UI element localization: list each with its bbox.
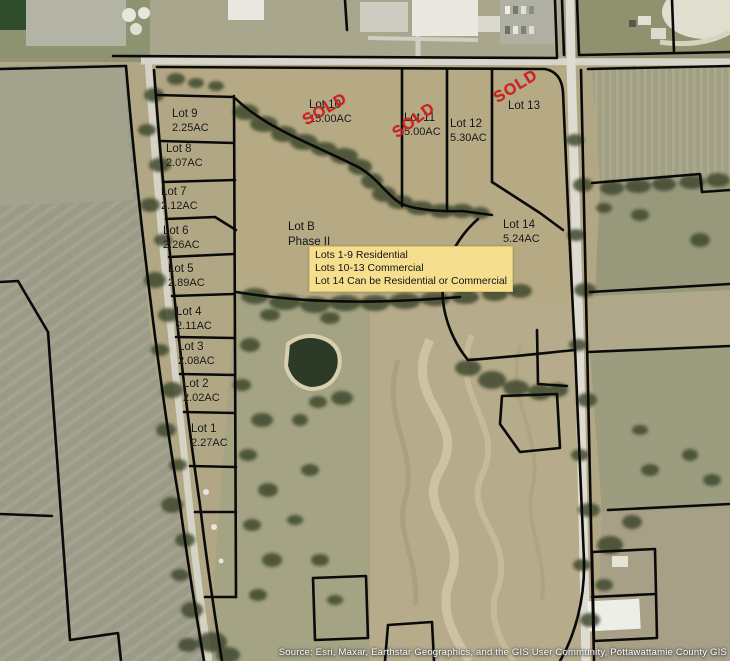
- lot-1-name: Lot 1: [191, 423, 228, 437]
- lot-13-name: Lot 13: [508, 100, 540, 114]
- lot-3-acreage: 2.08AC: [178, 355, 215, 368]
- lot-7-name: Lot 7: [161, 186, 198, 200]
- lot-4-name: Lot 4: [176, 306, 212, 320]
- lot-5-acreage: 2.89AC: [168, 277, 205, 290]
- lot-6-label: Lot 6 2.26AC: [163, 225, 200, 252]
- phase-label-line1: Lot B: [288, 220, 330, 235]
- lot-5-name: Lot 5: [168, 263, 205, 277]
- lot-12-name: Lot 12: [450, 118, 487, 132]
- lot-7-acreage: 2.12AC: [161, 200, 198, 213]
- lot-7-label: Lot 7 2.12AC: [161, 186, 198, 213]
- legend-line-residential: Lots 1-9 Residential: [315, 249, 507, 262]
- lot-6-acreage: 2.26AC: [163, 239, 200, 252]
- lot-3-name: Lot 3: [178, 341, 215, 355]
- lot-4-acreage: 2.11AC: [176, 320, 212, 333]
- lot-2-label: Lot 2 2.02AC: [183, 378, 220, 405]
- map-attribution: Source: Esri, Maxar, Earthstar Geographi…: [279, 647, 727, 658]
- lot-13-label: Lot 13: [508, 100, 540, 114]
- lot-5-label: Lot 5 2.89AC: [168, 263, 205, 290]
- lot-14-name: Lot 14: [503, 219, 540, 233]
- lot-2-acreage: 2.02AC: [183, 392, 220, 405]
- lot-8-label: Lot 8 2.07AC: [166, 143, 203, 170]
- lot-4-label: Lot 4 2.11AC: [176, 306, 212, 333]
- lot-12-acreage: 5.30AC: [450, 132, 487, 145]
- lot-8-name: Lot 8: [166, 143, 203, 157]
- legend-box: Lots 1-9 Residential Lots 10-13 Commerci…: [309, 246, 513, 292]
- lot-12-label: Lot 12 5.30AC: [450, 118, 487, 145]
- lot-6-name: Lot 6: [163, 225, 200, 239]
- lot-2-name: Lot 2: [183, 378, 220, 392]
- legend-line-lot14: Lot 14 Can be Residential or Commercial: [315, 275, 507, 288]
- lot-9-label: Lot 9 2.25AC: [172, 108, 209, 135]
- lot-8-acreage: 2.07AC: [166, 157, 203, 170]
- plat-aerial-map: Lot 9 2.25AC Lot 8 2.07AC Lot 7 2.12AC L…: [0, 0, 730, 661]
- lot-14-acreage: 5.24AC: [503, 233, 540, 246]
- lot-3-label: Lot 3 2.08AC: [178, 341, 215, 368]
- lot-9-name: Lot 9: [172, 108, 209, 122]
- lot-14-label: Lot 14 5.24AC: [503, 219, 540, 246]
- aerial-basemap: [0, 0, 730, 661]
- lot-1-acreage: 2.27AC: [191, 437, 228, 450]
- lot-9-acreage: 2.25AC: [172, 122, 209, 135]
- legend-line-commercial: Lots 10-13 Commercial: [315, 262, 507, 275]
- lot-1-label: Lot 1 2.27AC: [191, 423, 228, 450]
